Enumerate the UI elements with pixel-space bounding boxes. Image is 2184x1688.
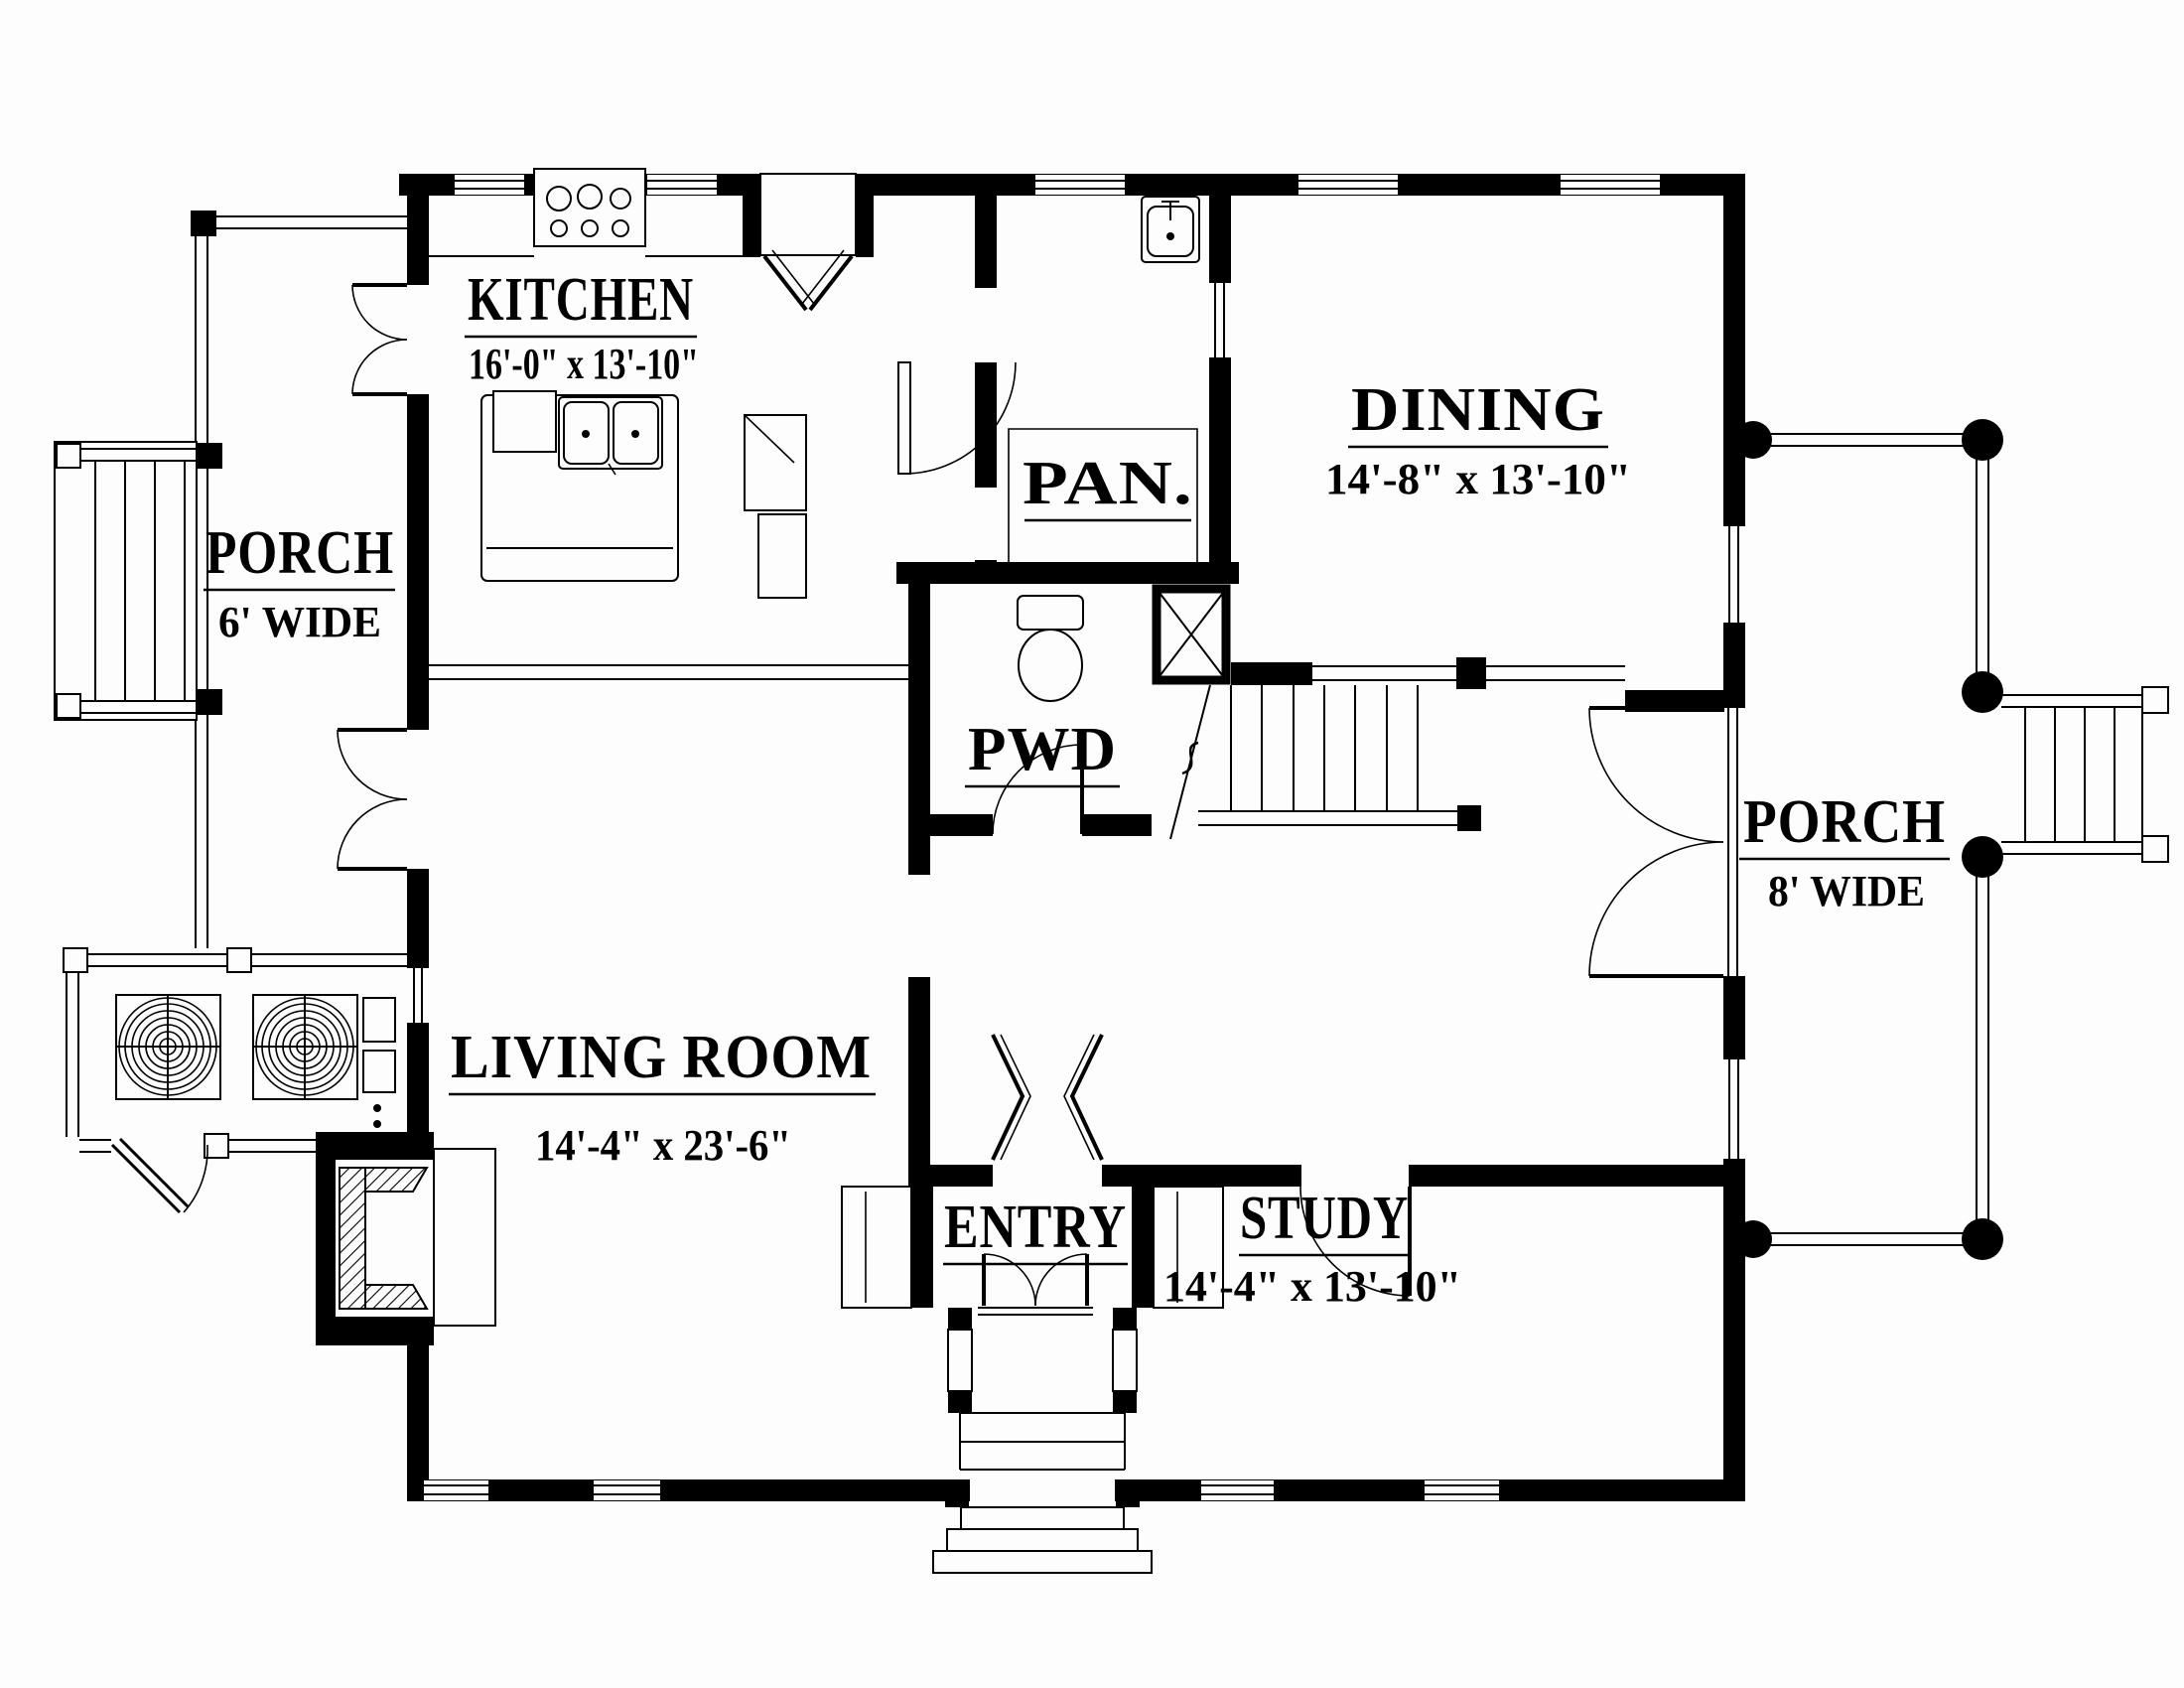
living-porch-door bbox=[338, 730, 407, 869]
hall-porch-door bbox=[1589, 708, 1737, 976]
label-entry: ENTRY bbox=[943, 1194, 1128, 1264]
window bbox=[1298, 175, 1398, 195]
room-label-study: STUDY bbox=[1240, 1185, 1409, 1252]
range bbox=[534, 169, 645, 246]
window bbox=[1035, 175, 1125, 195]
window bbox=[424, 1480, 488, 1500]
label-living: LIVING ROOM 14'-4" x 23'-6" bbox=[449, 1024, 876, 1170]
room-dims-kitchen: 16'-0" x 13'-10" bbox=[469, 340, 699, 388]
island-sink bbox=[559, 397, 662, 475]
room-label-entry: ENTRY bbox=[944, 1194, 1127, 1261]
entry-steps bbox=[933, 1308, 1152, 1573]
window bbox=[1201, 1480, 1274, 1500]
label-pantry: PAN. bbox=[1023, 450, 1193, 520]
label-dining: DINING 14'-8" x 13'-10" bbox=[1325, 376, 1631, 503]
window bbox=[594, 1480, 660, 1500]
label-porch-left: PORCH 6' WIDE bbox=[204, 519, 395, 646]
floor-plan-svg: KITCHEN 16'-0" x 13'-10" DINING 14'-8" x… bbox=[0, 0, 2184, 1688]
toilet bbox=[1018, 596, 1083, 701]
rear-niche bbox=[743, 174, 874, 310]
hvac-unit bbox=[116, 995, 220, 1099]
powder-room bbox=[1018, 596, 1083, 701]
hearth bbox=[434, 1149, 495, 1326]
label-kitchen: KITCHEN 16'-0" x 13'-10" bbox=[465, 266, 699, 388]
mud-hall-door bbox=[898, 362, 1016, 474]
room-label-pantry: PAN. bbox=[1023, 450, 1193, 517]
window bbox=[408, 968, 428, 1023]
left-porch-steps bbox=[55, 442, 197, 720]
floor-plan: KITCHEN 16'-0" x 13'-10" DINING 14'-8" x… bbox=[0, 0, 2184, 1688]
room-dims-living: 14'-4" x 23'-6" bbox=[535, 1121, 791, 1170]
room-label-porch-left: PORCH bbox=[205, 519, 394, 587]
room-dims-dining: 14'-8" x 13'-10" bbox=[1325, 455, 1631, 503]
window bbox=[647, 175, 717, 195]
fireplace bbox=[316, 1132, 495, 1345]
room-label-porch-right: PORCH bbox=[1743, 788, 1946, 856]
label-porch-right: PORCH 8' WIDE bbox=[1739, 788, 1950, 915]
stair-treads bbox=[1231, 685, 1418, 811]
cabinets bbox=[745, 415, 806, 598]
room-dims-study: 14'-4" x 13'-10" bbox=[1163, 1262, 1461, 1311]
window bbox=[1425, 1480, 1499, 1500]
gate bbox=[112, 1139, 207, 1212]
room-label-dining: DINING bbox=[1351, 376, 1605, 444]
room-label-kitchen: KITCHEN bbox=[468, 266, 694, 334]
room-label-living: LIVING ROOM bbox=[451, 1024, 872, 1091]
utility-sink bbox=[1142, 197, 1199, 262]
room-label-powder: PWD bbox=[968, 716, 1117, 783]
label-powder: PWD bbox=[965, 716, 1120, 786]
hvac-unit bbox=[253, 995, 357, 1099]
room-dims-porch-left: 6' WIDE bbox=[218, 598, 381, 646]
window bbox=[1724, 1059, 1744, 1159]
island bbox=[481, 391, 678, 581]
right-porch-steps bbox=[2001, 687, 2168, 862]
left-porch bbox=[55, 211, 407, 1212]
window bbox=[1561, 175, 1660, 195]
window bbox=[455, 175, 524, 195]
chase bbox=[1157, 589, 1226, 680]
stair-break-line bbox=[1170, 685, 1210, 839]
staircase bbox=[1170, 666, 1625, 839]
kitchen-porch-door bbox=[352, 285, 407, 394]
window bbox=[1724, 526, 1744, 623]
entry-bifold-doors bbox=[993, 1035, 1102, 1160]
room-dims-porch-right: 8' WIDE bbox=[1768, 867, 1925, 915]
